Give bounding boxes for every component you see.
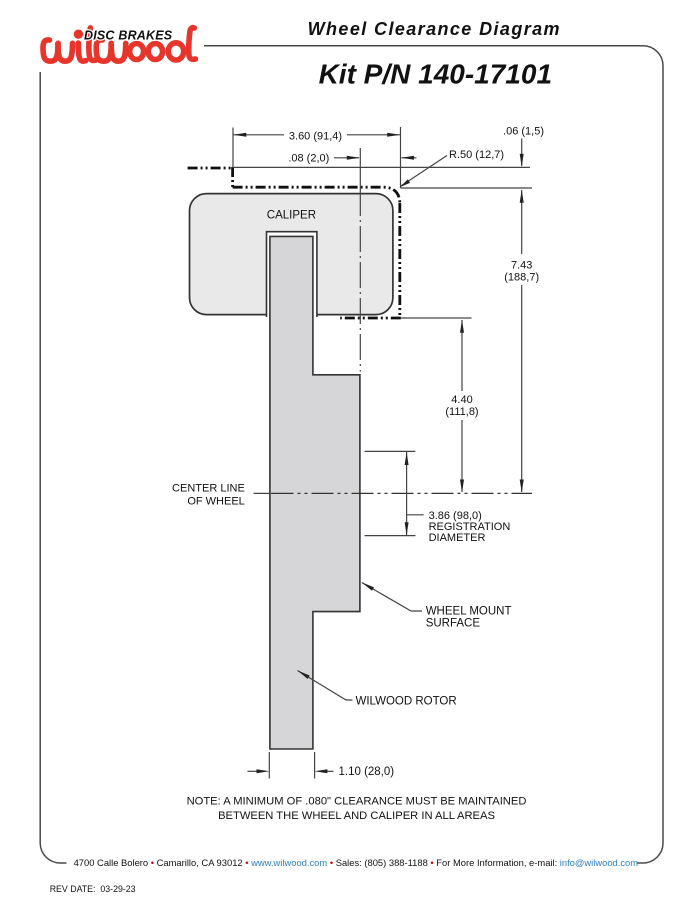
svg-text:DISC BRAKES: DISC BRAKES: [84, 29, 173, 43]
svg-text:OF WHEEL: OF WHEEL: [187, 495, 244, 507]
svg-text:.08 (2,0): .08 (2,0): [288, 153, 329, 165]
svg-text:4.40: 4.40: [451, 394, 472, 406]
svg-text:(188,7): (188,7): [504, 271, 539, 283]
svg-text:DIAMETER: DIAMETER: [429, 532, 486, 544]
svg-text:1.10 (28,0): 1.10 (28,0): [339, 766, 395, 778]
svg-text:.06 (1,5): .06 (1,5): [503, 125, 544, 137]
svg-text:4700 Calle Bolero • Camarillo,: 4700 Calle Bolero • Camarillo, CA 93012 …: [74, 857, 639, 868]
svg-text:Wheel Clearance Diagram: Wheel Clearance Diagram: [308, 19, 561, 39]
svg-text:7.43: 7.43: [511, 259, 532, 271]
svg-text:BETWEEN THE WHEEL AND CALIPER: BETWEEN THE WHEEL AND CALIPER IN ALL ARE…: [218, 810, 495, 822]
svg-text:CENTER LINE: CENTER LINE: [172, 483, 245, 495]
svg-text:R.50 (12,7): R.50 (12,7): [449, 149, 504, 161]
svg-text:REV DATE: 03-29-23: REV DATE: 03-29-23: [50, 884, 136, 894]
svg-text:(111,8): (111,8): [445, 406, 478, 418]
svg-text:3.60 (91,4): 3.60 (91,4): [289, 130, 342, 142]
svg-text:WILWOOD ROTOR: WILWOOD ROTOR: [356, 695, 457, 707]
svg-text:NOTE: A MINIMUM OF .080" CLEAR: NOTE: A MINIMUM OF .080" CLEARANCE MUST …: [187, 795, 527, 807]
svg-text:CALIPER: CALIPER: [267, 210, 316, 222]
svg-text:Kit P/N 140-17101: Kit P/N 140-17101: [319, 58, 552, 89]
svg-text:SURFACE: SURFACE: [426, 617, 481, 629]
svg-text:WHEEL MOUNT: WHEEL MOUNT: [426, 606, 512, 618]
